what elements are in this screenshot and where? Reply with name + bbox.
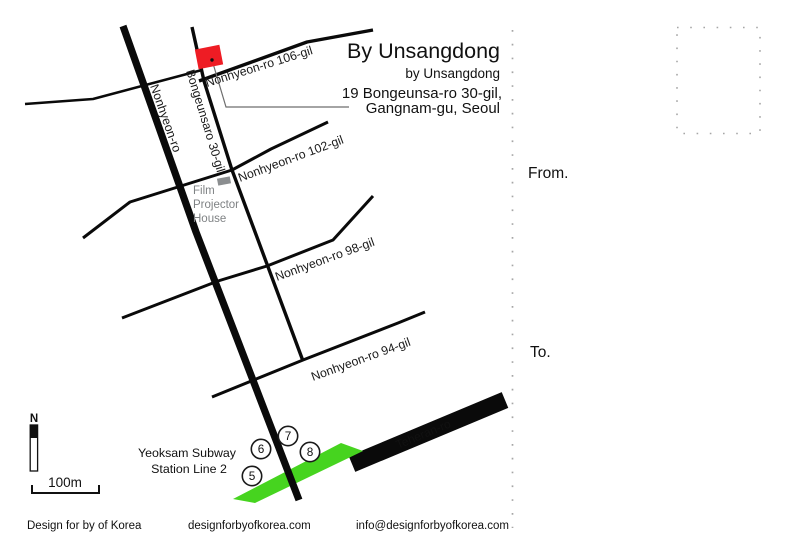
from-label: From. [528,165,568,182]
subway-station-label-line2: Station Line 2 [151,462,227,476]
footer-email: info@designforbyofkorea.com [356,520,509,532]
film-house-label-line1: Film [193,185,215,197]
stamp-box-dotted [677,28,760,134]
footer: Design for by of Korea designforbyofkore… [27,520,509,532]
page-subtitle: by Unsangdong [405,66,500,81]
svg-text:5: 5 [249,469,256,483]
subway-exit-8: 8 [300,442,319,461]
address-line2: Gangnam-gu, Seoul [366,100,500,117]
destination-building-marker [195,45,223,69]
leader-anchor-dot [210,58,213,61]
svg-text:6: 6 [258,442,265,456]
title-block: By Unsangdong by Unsangdong 19 Bongeunsa… [342,39,502,117]
film-house-label-line2: Projector [193,199,239,211]
film-projector-house-marker [217,176,231,185]
subway-exit-7: 7 [278,426,297,445]
footer-credit: Design for by of Korea [27,520,142,532]
north-label: N [30,413,38,425]
subway-exit-5: 5 [242,466,261,485]
scale-bar: 100m [32,475,99,493]
north-arrow-filled-segment [30,425,37,438]
road-side-west [25,70,202,104]
north-indicator: N [30,413,38,471]
subway-station-label-line1: Yeoksam Subway [138,446,237,460]
road-label-nonhyeon-94gil: Nonhyeon-ro 94-gil [309,335,412,384]
footer-website: designforbyofkorea.com [188,520,311,532]
map-canvas: Film Projector House Nonhyeon-ro Bongeun… [0,0,788,558]
svg-text:7: 7 [285,429,292,443]
film-house-label-line3: House [193,213,226,225]
film-projector-house-group: Film Projector House [193,176,239,225]
svg-text:8: 8 [307,445,314,459]
to-label: To. [530,344,551,361]
page-title: By Unsangdong [347,39,500,63]
subway-exit-6: 6 [251,439,270,458]
postcard: Film Projector House Nonhyeon-ro Bongeun… [0,0,788,558]
scale-label: 100m [48,475,82,490]
